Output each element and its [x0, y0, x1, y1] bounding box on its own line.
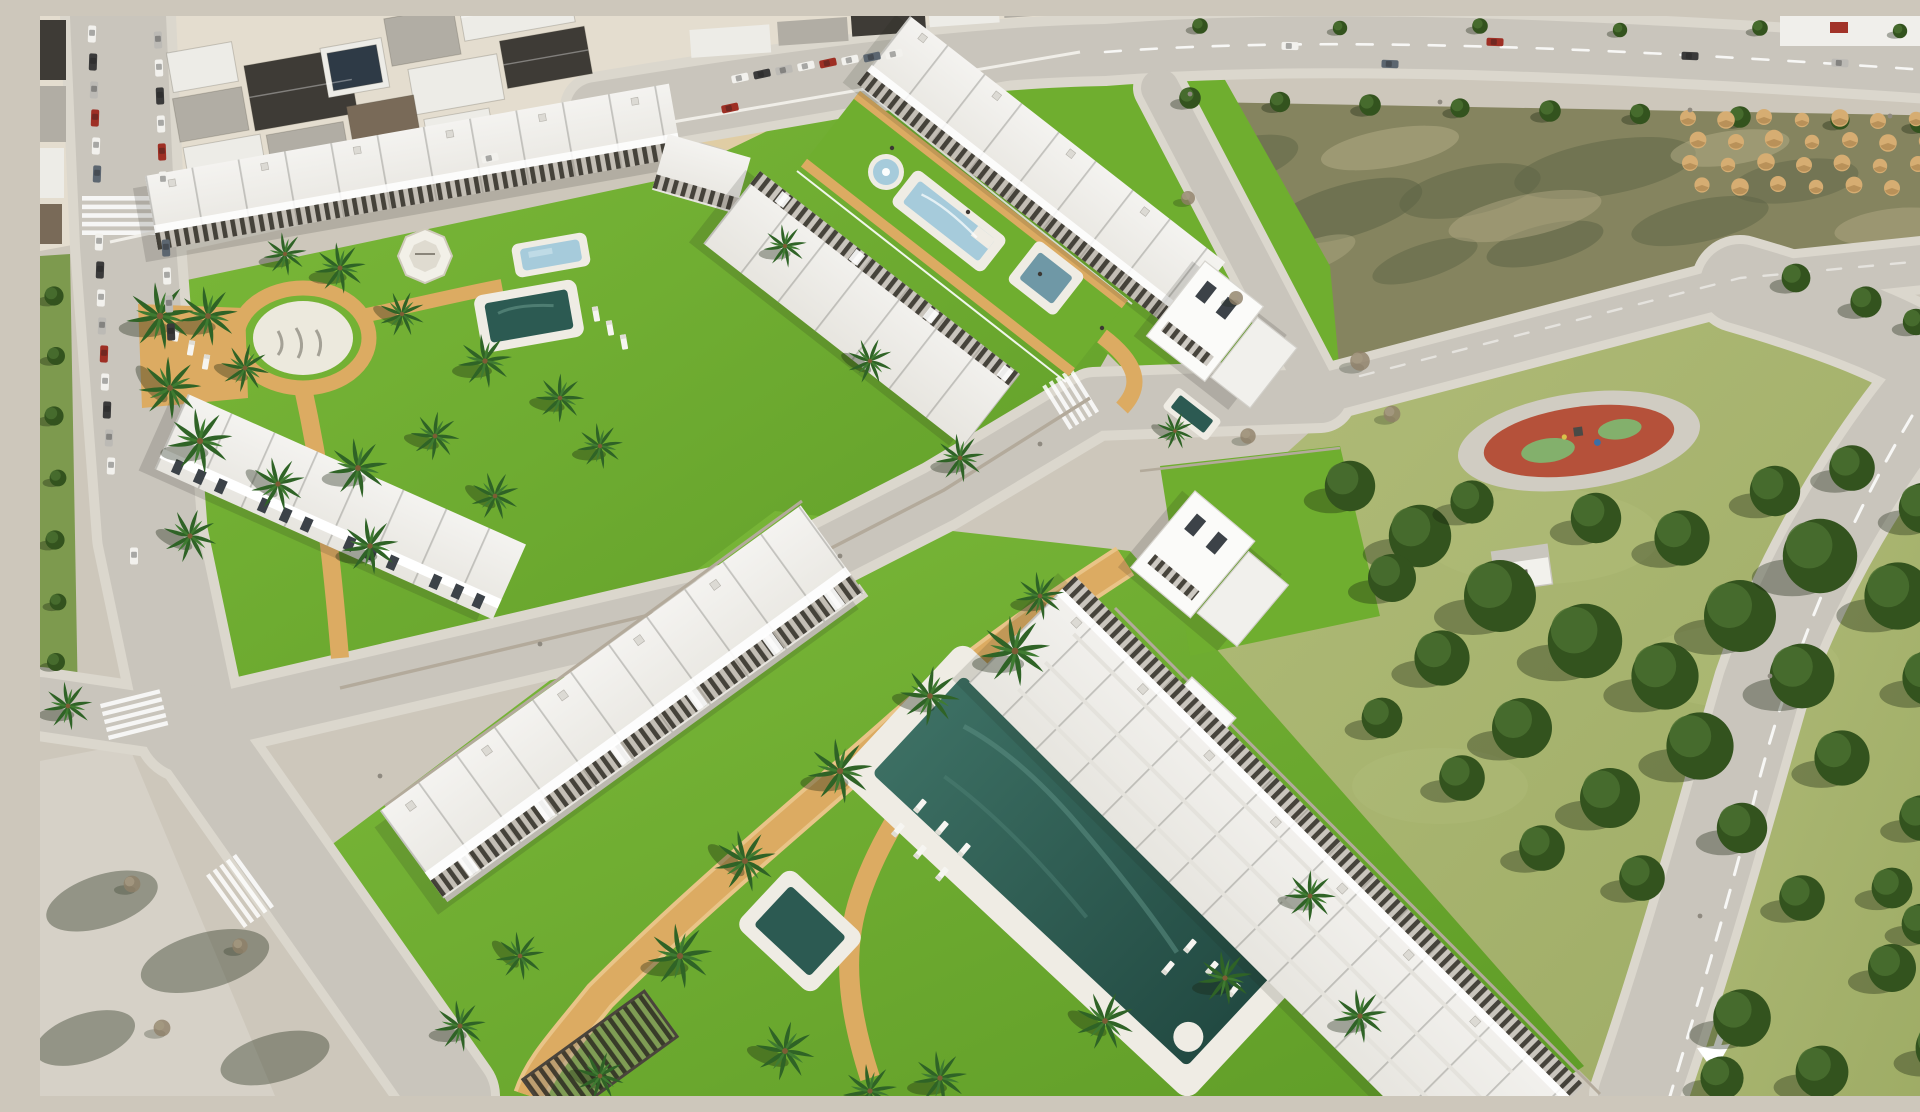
red-accent-top-right [1830, 22, 1848, 33]
decorative-plaza [253, 301, 353, 375]
spa-octagon [398, 229, 452, 283]
scene-canvas [40, 16, 1920, 1096]
strip-fountain [868, 154, 904, 190]
aerial-render: Aerial drone view of a new-build Mediter… [40, 16, 1920, 1096]
